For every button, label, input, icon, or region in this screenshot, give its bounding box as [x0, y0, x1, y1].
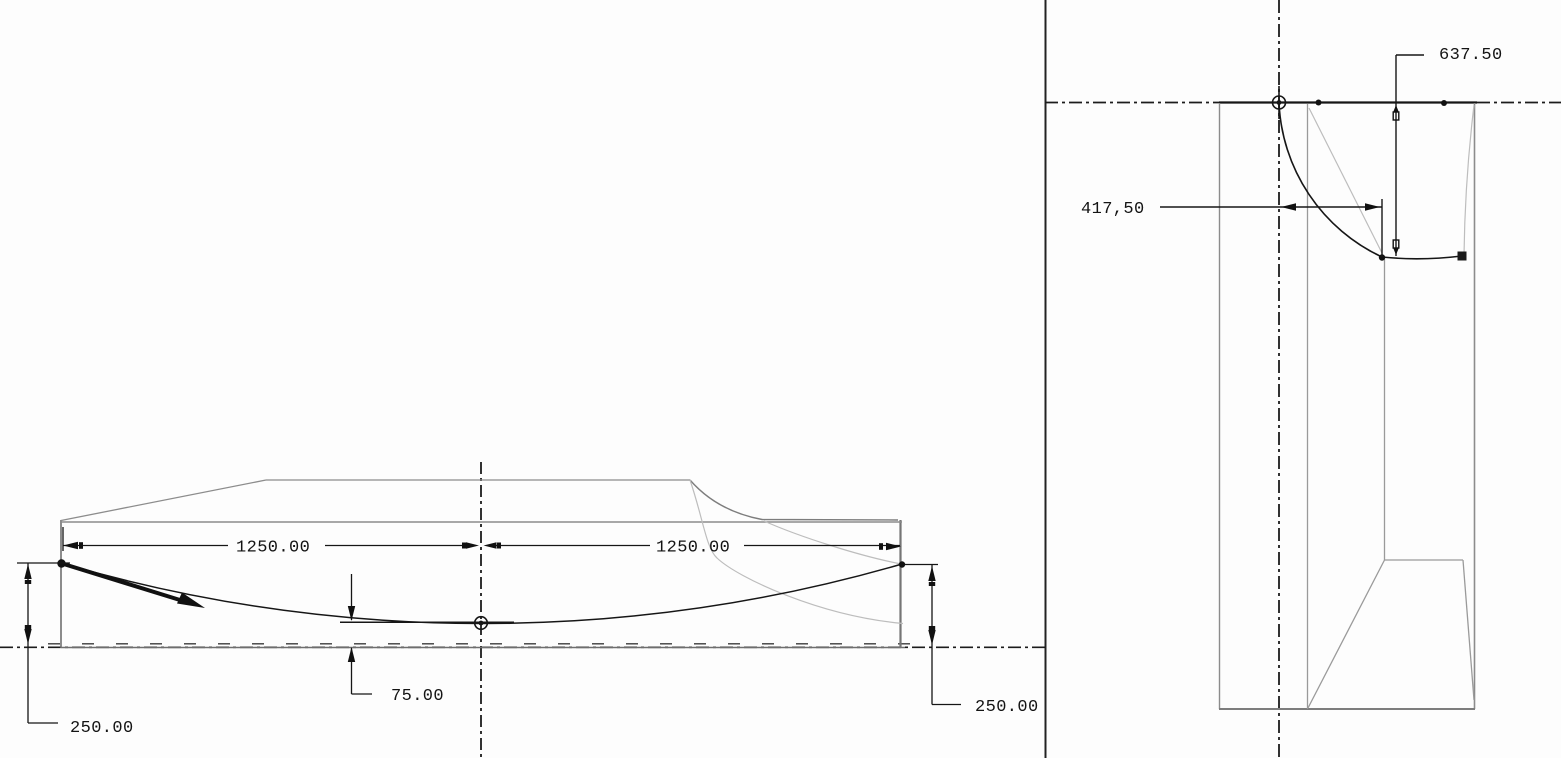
svg-text:250.00: 250.00 [70, 719, 134, 738]
svg-text:75.00: 75.00 [391, 687, 444, 706]
svg-text:417,50: 417,50 [1081, 200, 1145, 219]
svg-text:250.00: 250.00 [975, 698, 1039, 717]
svg-text:1250.00: 1250.00 [236, 539, 310, 558]
svg-text:637.50: 637.50 [1439, 46, 1503, 65]
svg-text:1250.00: 1250.00 [656, 539, 730, 558]
